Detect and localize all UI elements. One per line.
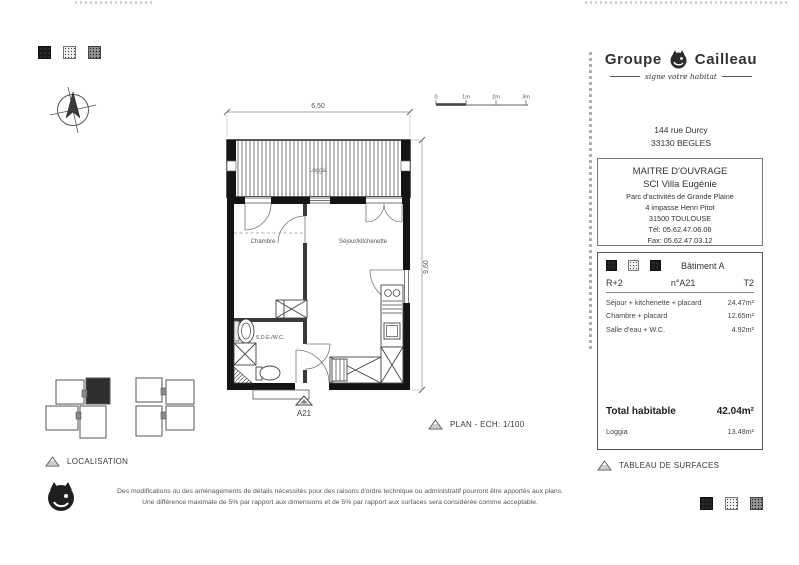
disclaimer-line-2: Une différence maximale de 5% par rappor… [100,498,580,509]
mo-name: SCI Villa Eugénie [598,179,762,190]
mo-line: 4 impasse Henri Pitot [598,203,762,214]
texture-swatch-light-icon [628,260,639,271]
cropped-text-artifact [75,1,155,4]
surfaces-caption-label: TABLEAU DE SURFACES [619,461,719,470]
surface-row: Séjour + kitchenette + placard 24.47m² [606,298,754,307]
unit-id-row: R+2 n°A21 T2 [606,278,754,293]
dimension-height: 9,60 [412,137,430,393]
tagline-rule [722,76,752,77]
unit-type: T2 [743,278,754,288]
unit-number: n°A21 [671,278,696,288]
cailleau-cat-icon [668,50,689,69]
room-label-sejour: Séjour/kitchenette [339,239,388,245]
company-name-right: Cailleau [695,51,757,68]
mo-line: Parc d'activités de Grande Plaine [598,192,762,203]
surfaces-caption: TABLEAU DE SURFACES [597,460,719,471]
plan-caption: PLAN - ECH: 1/100 [428,419,524,430]
texture-swatch-dense-icon [650,260,661,271]
legend-swatches [38,46,101,59]
legend-swatches-bottom [700,497,763,510]
localisation-caption-label: LOCALISATION [67,457,128,466]
surface-row: Chambre + placard 12.65m² [606,311,754,320]
surface-table-box: Bâtiment A R+2 n°A21 T2 Séjour + kitchen… [597,252,763,450]
location-key-plans [40,372,210,456]
sde-door-swing [305,344,330,369]
plan-caption-label: PLAN - ECH: 1/100 [450,420,524,429]
margin-microtext-artifact [589,52,592,352]
disclaimer: Des modifications ou des aménagements de… [100,487,580,508]
total-value: 42.04m² [717,406,754,417]
texture-swatch-dark-icon [606,260,617,271]
texture-swatch-mid-icon [88,46,101,59]
kitchen-fixtures [330,285,403,383]
tagline-rule [610,76,640,77]
surface-row-value: 24.47m² [728,298,754,307]
chambre-door-swing [278,216,305,243]
scale-tick-3m: 3m [522,95,530,101]
surface-row-value: 4.92m² [732,325,754,334]
address-street: 144 rue Durcy [597,124,765,137]
texture-swatch-mid-icon [750,497,763,510]
mo-line-tel: Tél: 05.62.47.06.06 [598,225,762,236]
dimension-width: 6,50 [224,103,413,137]
floor-label: R+2 [606,278,623,288]
mo-line-fax: Fax: 05.62.47.03.12 [598,236,762,247]
surface-row-label: Chambre + placard [606,311,667,320]
room-label-sde: S.D.E./W.C. [256,335,285,341]
texture-swatch-light-icon [725,497,738,510]
room-label-chambre: Chambre [251,239,276,245]
plan-triangle-icon [428,419,443,430]
surface-table-header: Bâtiment A [606,260,754,271]
scale-tick-2m: 2m [492,95,500,101]
loggia-door-swings [245,204,402,230]
loggia-value: 13.48m² [728,427,754,436]
room-label-loggia: Loggia [309,168,328,174]
disclaimer-line-1: Des modifications ou des aménagements de… [100,487,580,498]
company-address: 144 rue Durcy 33130 BEGLES [597,124,765,150]
total-label: Total habitable [606,406,676,417]
surface-row: Salle d'eau + W.C. 4.92m² [606,325,754,334]
dim-width-label: 6,50 [311,103,325,110]
building-label: Bâtiment A [681,261,725,271]
floor-plan: 6,50 9,60 Loggia [200,85,450,440]
bathroom-fixtures [234,319,280,383]
front-wall [227,197,410,204]
company-tagline: signe votre habitat [645,72,717,81]
unit-marker-label: A21 [297,409,312,418]
loggia-label: Loggia [606,427,628,436]
texture-swatch-dark-icon [38,46,51,59]
loggia-row: Loggia 13.48m² [606,427,754,436]
cropped-text-artifact [585,1,790,4]
texture-swatch-dark-icon [700,497,713,510]
scale-tick-1m: 1m [462,95,470,101]
total-row: Total habitable 42.04m² [606,406,754,417]
surface-row-label: Salle d'eau + W.C. [606,325,665,334]
dim-height-label: 9,60 [423,260,430,274]
address-city: 33130 BEGLES [597,137,765,150]
plan-sheet: 0 1m 2m 3m 6,50 [0,0,799,565]
placard [276,300,307,318]
surfaces-triangle-icon [597,460,612,471]
localisation-caption: LOCALISATION [45,456,128,467]
room-loggia: Loggia [227,140,410,197]
maitre-ouvrage-box: MAITRE D'OUVRAGE SCI Villa Eugénie Parc … [597,158,763,246]
company-logo-block: Groupe Cailleau signe votre habitat [597,50,765,81]
surface-row-value: 12.65m² [728,311,754,320]
mo-title: MAITRE D'OUVRAGE [598,166,762,177]
compass-icon [48,85,98,135]
cailleau-logo-stamp [44,480,78,514]
mo-line: 31500 TOULOUSE [598,214,762,225]
company-name-left: Groupe [605,51,662,68]
localisation-triangle-icon [45,456,60,467]
texture-swatch-light-icon [63,46,76,59]
surface-row-label: Séjour + kitchenette + placard [606,298,702,307]
